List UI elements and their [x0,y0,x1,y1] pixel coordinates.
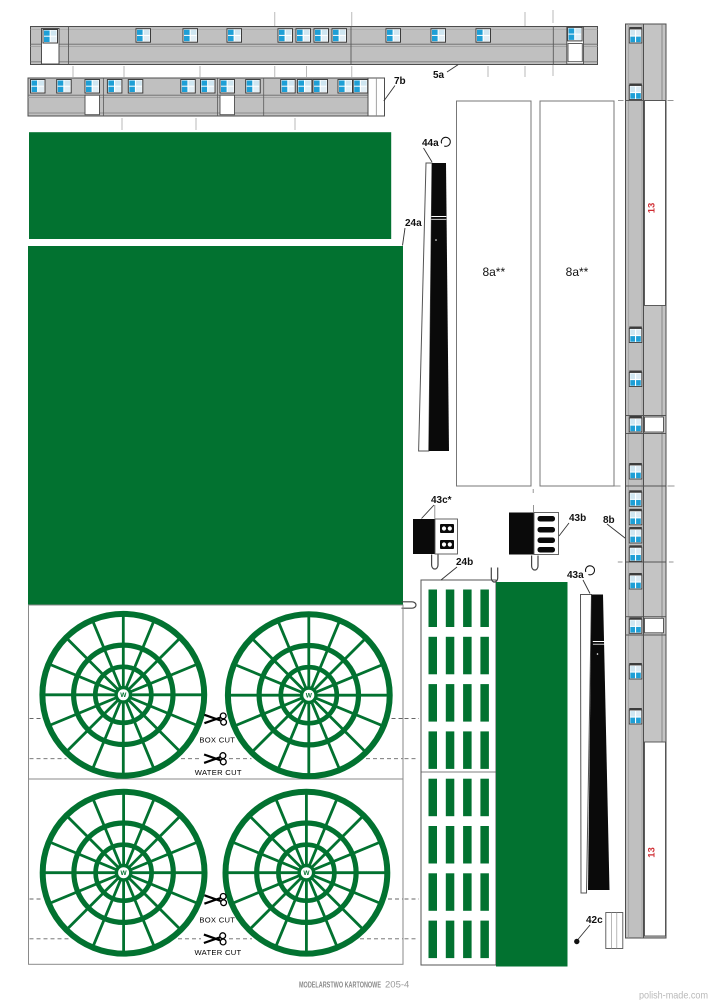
svg-text:BOX CUT: BOX CUT [199,736,235,745]
svg-text:205-4: 205-4 [385,980,409,991]
svg-text:24a: 24a [405,218,422,229]
svg-text:43a: 43a [567,570,584,581]
svg-text:polish-made.com: polish-made.com [639,990,708,1000]
svg-text:7b: 7b [394,76,406,87]
svg-text:WATER CUT: WATER CUT [195,948,242,957]
svg-text:WATER CUT: WATER CUT [195,768,242,777]
svg-text:44a: 44a [422,138,439,149]
svg-text:BOX CUT: BOX CUT [199,916,235,925]
svg-text:8a**: 8a** [566,265,589,279]
svg-text:43c*: 43c* [431,495,452,506]
svg-text:13: 13 [647,203,658,214]
svg-text:43b: 43b [569,513,586,524]
svg-text:13: 13 [647,847,658,858]
svg-text:8b: 8b [603,515,615,526]
svg-text:8a**: 8a** [482,265,505,279]
svg-text:42c: 42c [586,915,603,926]
svg-text:5a: 5a [433,70,445,81]
svg-text:24b: 24b [456,557,473,568]
svg-text:MODELARSTWO KARTONOWE: MODELARSTWO KARTONOWE [299,980,381,990]
